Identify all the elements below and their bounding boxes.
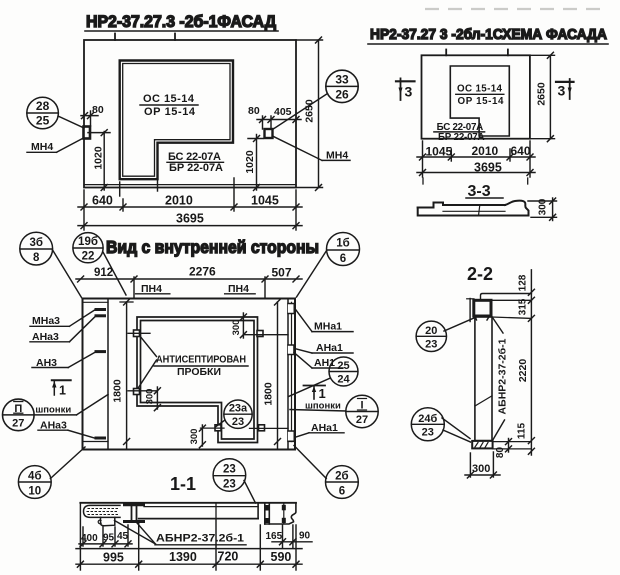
svg-text:НР2-37.27 3 -2бл-1СХЕМА ФАСАДА: НР2-37.27 3 -2бл-1СХЕМА ФАСАДА [370, 26, 607, 43]
svg-text:590: 590 [271, 550, 292, 564]
svg-text:400: 400 [81, 533, 98, 544]
svg-text:24б: 24б [418, 413, 437, 425]
svg-text:640: 640 [511, 144, 531, 158]
svg-text:300: 300 [189, 429, 200, 445]
svg-text:3695: 3695 [176, 212, 204, 226]
svg-text:23: 23 [223, 479, 236, 491]
svg-text:ОС 15-14: ОС 15-14 [143, 93, 195, 105]
svg-text:1800: 1800 [112, 379, 124, 403]
svg-text:115: 115 [517, 422, 528, 439]
svg-text:1045: 1045 [426, 145, 453, 159]
svg-text:19б: 19б [78, 236, 98, 248]
svg-text:640: 640 [92, 194, 113, 208]
svg-text:3: 3 [558, 83, 566, 99]
svg-text:1: 1 [59, 384, 66, 398]
svg-text:80: 80 [248, 105, 260, 117]
svg-text:23: 23 [422, 427, 434, 439]
svg-text:1б: 1б [336, 238, 350, 250]
svg-text:507: 507 [272, 266, 292, 280]
svg-text:шпонки: шпонки [35, 405, 71, 416]
svg-text:ОС 15-14: ОС 15-14 [457, 84, 503, 95]
svg-text:45: 45 [117, 531, 129, 542]
svg-text:8: 8 [33, 252, 40, 264]
svg-text:АНа1: АНа1 [316, 342, 343, 354]
svg-text:1800: 1800 [263, 382, 275, 406]
svg-text:95: 95 [103, 533, 115, 544]
svg-text:20: 20 [425, 325, 437, 337]
svg-text:26: 26 [335, 88, 349, 102]
svg-text:АНТИСЕПТИРОВАН: АНТИСЕПТИРОВАН [156, 354, 246, 366]
svg-text:2276: 2276 [189, 265, 216, 279]
svg-text:2010: 2010 [165, 194, 193, 208]
svg-text:2220: 2220 [517, 359, 529, 383]
svg-text:315: 315 [518, 298, 529, 315]
svg-text:2010: 2010 [472, 144, 499, 158]
svg-text:МНа3: МНа3 [32, 315, 60, 327]
svg-text:БР 22-07А: БР 22-07А [169, 162, 223, 174]
svg-text:300: 300 [231, 320, 242, 336]
svg-text:МН4: МН4 [31, 141, 53, 153]
svg-text:6: 6 [340, 253, 346, 265]
svg-text:1: 1 [319, 386, 326, 401]
svg-text:МНа1: МНа1 [314, 321, 342, 333]
svg-text:90: 90 [299, 531, 311, 542]
svg-text:80: 80 [92, 104, 104, 116]
svg-text:27: 27 [12, 418, 24, 430]
svg-text:128: 128 [518, 274, 529, 291]
svg-text:1-1: 1-1 [170, 474, 196, 494]
svg-text:720: 720 [218, 550, 239, 564]
svg-text:6: 6 [339, 486, 345, 498]
svg-text:300: 300 [145, 389, 156, 405]
svg-text:Вид с внутренней стороны: Вид с внутренней стороны [106, 237, 319, 257]
svg-text:27: 27 [356, 414, 368, 426]
svg-text:23а: 23а [229, 403, 248, 415]
svg-text:ПРОБКИ: ПРОБКИ [177, 366, 221, 378]
svg-text:300: 300 [472, 463, 490, 475]
svg-text:300: 300 [538, 198, 549, 215]
svg-text:1045: 1045 [251, 194, 279, 208]
svg-text:ОР 15-14: ОР 15-14 [458, 96, 505, 107]
svg-text:1020: 1020 [93, 146, 105, 170]
svg-text:3: 3 [405, 84, 413, 100]
svg-text:2650: 2650 [536, 82, 548, 106]
svg-text:405: 405 [274, 106, 292, 118]
svg-text:25: 25 [36, 114, 50, 128]
svg-text:3б: 3б [29, 237, 43, 249]
svg-text:22: 22 [82, 251, 95, 263]
svg-text:1020: 1020 [244, 150, 256, 174]
svg-text:4б: 4б [28, 471, 42, 483]
svg-text:10: 10 [28, 486, 41, 498]
svg-text:23: 23 [232, 416, 244, 428]
svg-text:1390: 1390 [169, 550, 197, 564]
svg-text:ОР 15-14: ОР 15-14 [144, 106, 196, 118]
svg-text:24: 24 [337, 374, 350, 386]
svg-text:3695: 3695 [474, 161, 502, 175]
svg-text:33: 33 [335, 73, 349, 87]
svg-text:БР 22-07А: БР 22-07А [438, 132, 485, 143]
svg-text:28: 28 [36, 99, 50, 113]
svg-text:23: 23 [223, 464, 236, 476]
svg-text:АБНР2-37-2б-1: АБНР2-37-2б-1 [497, 338, 509, 414]
svg-text:АНа3: АНа3 [32, 331, 59, 343]
svg-text:165: 165 [266, 531, 283, 542]
svg-text:25: 25 [337, 360, 349, 372]
svg-text:912: 912 [94, 267, 113, 279]
svg-text:2б: 2б [335, 471, 349, 483]
svg-text:АБНР2-37.2б-1: АБНР2-37.2б-1 [156, 533, 244, 545]
svg-text:2-2: 2-2 [467, 264, 493, 284]
svg-text:80: 80 [495, 447, 506, 459]
svg-text:НР2-37.27.3 -2б-1ФАСАД: НР2-37.27.3 -2б-1ФАСАД [86, 13, 276, 31]
svg-text:995: 995 [103, 551, 124, 565]
svg-text:23: 23 [425, 338, 437, 350]
